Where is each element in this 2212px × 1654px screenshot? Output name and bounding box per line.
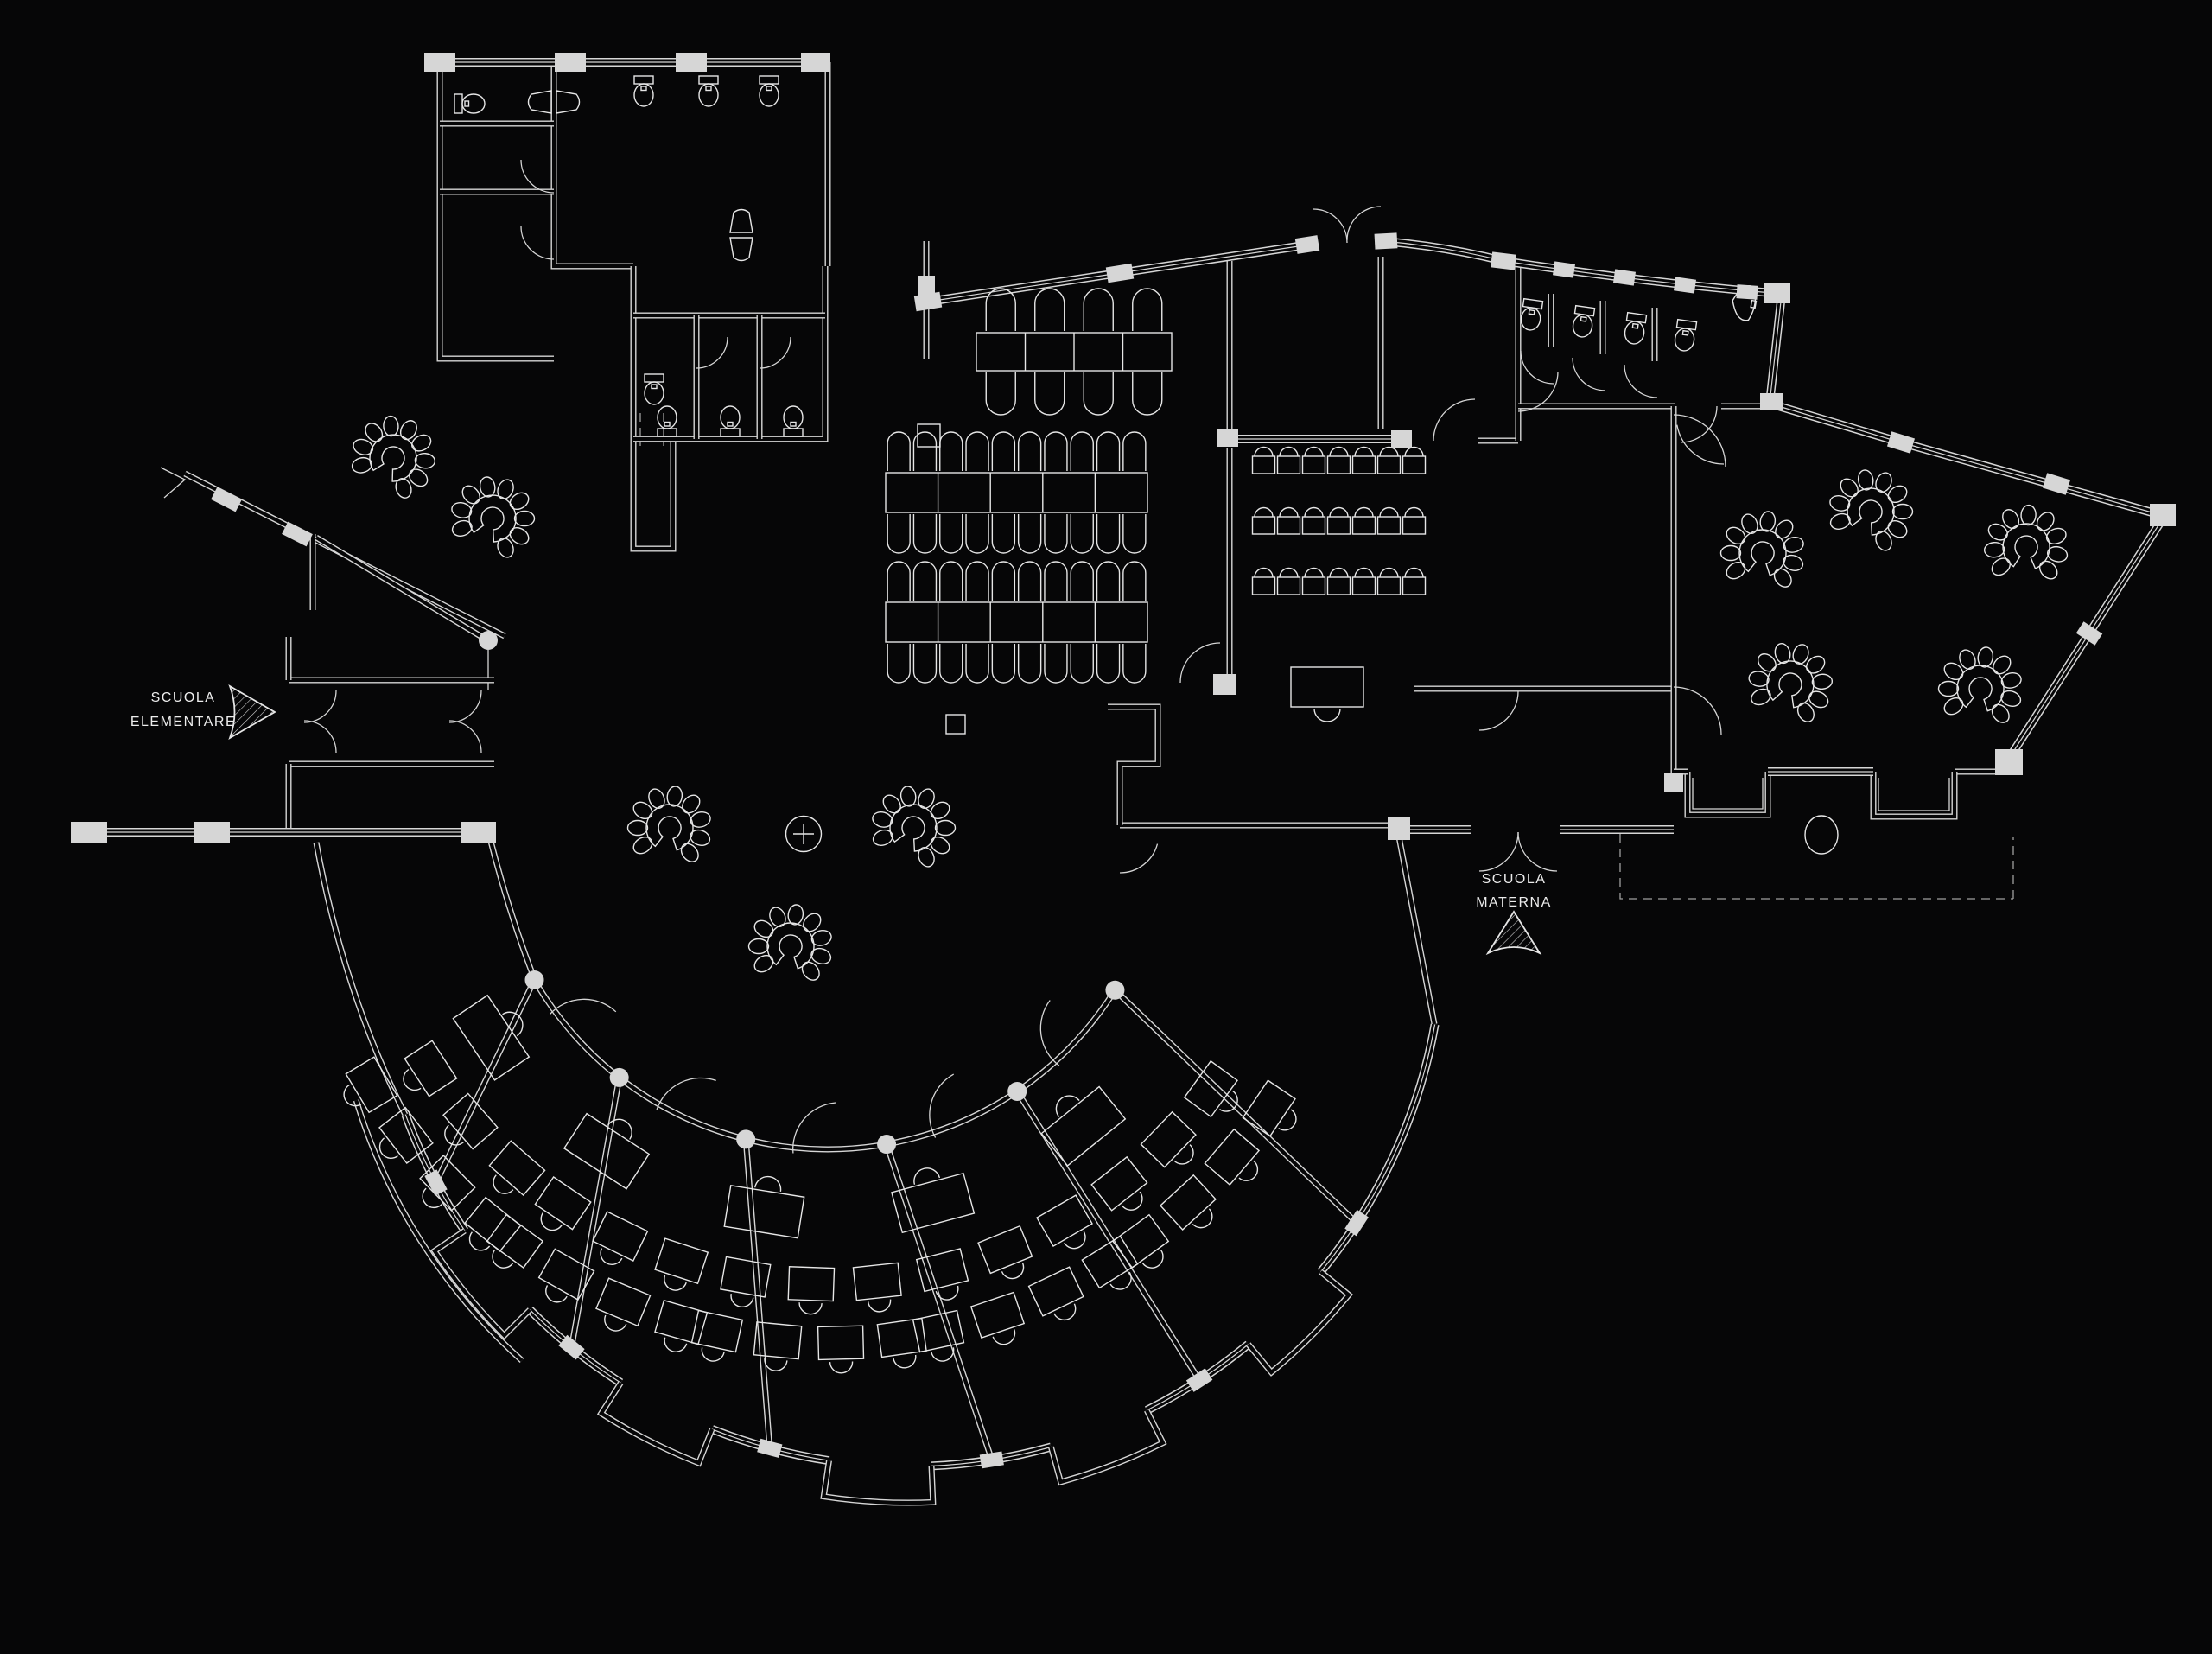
- pupil-chair-icon: [1999, 506, 2022, 531]
- pupil-chair-icon: [767, 905, 789, 929]
- column-icon: [1007, 1082, 1027, 1101]
- pupil-chair-icon: [362, 420, 385, 445]
- door-swing-icon: [1518, 832, 1557, 871]
- pupil-chair-icon: [1795, 700, 1817, 724]
- pier: [424, 53, 455, 72]
- pupil-chair-icon: [450, 518, 474, 538]
- horseshoe-table-icon: [1984, 505, 2069, 582]
- pier: [676, 53, 707, 72]
- pupil-chair-icon: [1045, 562, 1067, 601]
- pier: [1736, 284, 1758, 300]
- pupil-chair-icon: [406, 466, 431, 490]
- pupil-chair-icon: [1278, 448, 1300, 474]
- pupil-chair-icon: [1097, 644, 1120, 683]
- horseshoe-table-icon: [871, 786, 956, 869]
- door-swing-icon: [1479, 691, 1518, 730]
- door-swing-icon: [449, 690, 481, 722]
- student-desk-icon: [1243, 1080, 1306, 1143]
- wc-toilet-icon: [634, 76, 653, 106]
- door-swing-icon: [521, 160, 554, 193]
- dining-table-icon: [976, 289, 1172, 415]
- pier: [1217, 429, 1238, 447]
- horseshoe-table-icon: [351, 416, 435, 500]
- pupil-chair-icon: [1353, 508, 1376, 535]
- student-desk-icon: [971, 1293, 1029, 1352]
- pupil-chair-icon: [752, 952, 777, 976]
- pupil-chair-icon: [1253, 569, 1275, 595]
- bay-wall: [1051, 1410, 1163, 1482]
- pupil-chair-icon: [1253, 508, 1275, 535]
- pupil-chair-icon: [1378, 448, 1401, 474]
- pupil-chair-icon: [1828, 512, 1852, 531]
- pupil-chair-icon: [1812, 673, 1833, 690]
- pupil-chair-icon: [1071, 644, 1093, 683]
- teacher-desk-icon: [1291, 667, 1363, 722]
- pier: [1375, 232, 1398, 249]
- pupil-chair-icon: [1123, 514, 1146, 553]
- pupil-chair-icon: [1885, 482, 1910, 506]
- door-swing-icon: [1521, 351, 1554, 384]
- pupil-chair-icon: [1378, 569, 1401, 595]
- pupil-chair-icon: [1303, 508, 1325, 535]
- pupil-chair-icon: [1071, 514, 1093, 553]
- bay-wall: [1249, 1272, 1349, 1372]
- door-swing-icon: [1674, 687, 1721, 735]
- horseshoe-table-icon: [628, 786, 713, 865]
- pupil-chair-icon: [752, 917, 777, 940]
- pier: [194, 822, 230, 843]
- column-icon: [1105, 981, 1124, 1000]
- student-desk-icon: [818, 1326, 864, 1373]
- pupil-chair-icon: [1893, 505, 1913, 519]
- pupil-chair-icon: [1123, 562, 1146, 601]
- column-icon: [479, 631, 498, 650]
- door-swing-icon: [304, 690, 336, 722]
- wc-toilet-icon: [1674, 320, 1697, 353]
- pupil-chair-icon: [410, 432, 434, 455]
- column-icon: [736, 1129, 755, 1148]
- pier: [211, 487, 242, 512]
- pupil-chair-icon: [397, 417, 420, 442]
- pupil-chair-icon: [383, 416, 399, 436]
- pupil-chair-icon: [1942, 659, 1967, 683]
- pupil-chair-icon: [1303, 448, 1325, 474]
- student-desk-icon: [978, 1226, 1037, 1287]
- pupil-chair-icon: [940, 432, 963, 471]
- pupil-chair-icon: [966, 514, 988, 553]
- pupil-chair-icon: [1739, 512, 1761, 536]
- window-wall: [1321, 1025, 1435, 1272]
- pupil-chair-icon: [1084, 372, 1113, 415]
- pupil-chair-icon: [928, 798, 953, 822]
- label-materna-line1: SCUOLA: [1482, 872, 1547, 887]
- student-desk-icon: [651, 1238, 708, 1296]
- wc-toilet-icon: [721, 406, 740, 436]
- pupil-chair-icon: [1133, 289, 1162, 331]
- column-icon: [525, 970, 544, 989]
- pier: [1106, 264, 1134, 283]
- door-swing-icon: [304, 721, 336, 753]
- entrance-arrow-icon-right: [230, 686, 275, 738]
- pupil-chair-icon: [1328, 448, 1351, 474]
- pupil-chair-icon: [1986, 521, 2010, 544]
- teacher-desk-icon: [453, 987, 541, 1080]
- pupil-chair-icon: [1378, 508, 1401, 535]
- pupil-chair-icon: [1942, 695, 1967, 718]
- student-desk-icon: [1205, 1129, 1269, 1194]
- student-desk-icon: [718, 1256, 771, 1310]
- wall: [1108, 707, 1158, 825]
- wall: [1873, 772, 1955, 817]
- pier: [1491, 251, 1516, 270]
- pupil-chair-icon: [1303, 569, 1325, 595]
- pupil-chair-icon: [940, 514, 963, 553]
- pupil-chair-icon: [928, 834, 953, 857]
- door-swing-icon: [1479, 832, 1518, 871]
- pupil-chair-icon: [1097, 514, 1120, 553]
- door-swing-icon: [1624, 365, 1657, 398]
- student-desk-icon: [527, 1177, 590, 1241]
- thin-wall: [1693, 778, 1763, 809]
- pupil-chair-icon: [1885, 518, 1910, 541]
- door-swing-icon: [1573, 358, 1605, 391]
- wall: [633, 266, 825, 439]
- horseshoe-table-icon: [749, 904, 834, 983]
- pupil-chair-icon: [1873, 529, 1895, 553]
- pupil-chair-icon: [2034, 509, 2057, 534]
- pupil-chair-icon: [1353, 569, 1376, 595]
- student-desk-icon: [1029, 1267, 1090, 1328]
- student-desk-icon: [1113, 1215, 1177, 1279]
- floor-plan-canvas: SCUOLA ELEMENTARE SCUOLA MATERNA: [0, 0, 2212, 1654]
- pier: [801, 53, 830, 72]
- pupil-chair-icon: [992, 562, 1014, 601]
- pupil-chair-icon: [1353, 448, 1376, 474]
- pier: [1213, 674, 1236, 695]
- teacher-desk-icon: [1033, 1075, 1126, 1166]
- pier: [1887, 431, 1915, 453]
- pupil-chair-icon: [1721, 546, 1741, 561]
- pupil-chair-icon: [1097, 562, 1120, 601]
- pier: [1295, 235, 1319, 254]
- pupil-chair-icon: [1035, 372, 1065, 415]
- student-desk-icon: [788, 1267, 835, 1315]
- entrance-arrow-icon-up: [1488, 912, 1540, 953]
- pupil-chair-icon: [1939, 682, 1959, 697]
- wc-toilet-icon: [454, 94, 485, 113]
- pier: [1764, 283, 1790, 303]
- pupil-chair-icon: [1328, 569, 1351, 595]
- pier: [1613, 269, 1636, 285]
- wc-toilet-icon: [1520, 299, 1543, 332]
- pupil-chair-icon: [1084, 289, 1113, 331]
- pupil-chair-icon: [1019, 514, 1041, 553]
- pupil-chair-icon: [1253, 448, 1275, 474]
- pupil-chair-icon: [798, 958, 823, 983]
- dining-table-icon: [886, 562, 1147, 683]
- pupil-chair-icon: [1035, 289, 1065, 331]
- hall-inner-arc-wall: [535, 980, 1116, 1149]
- pupil-chair-icon: [887, 562, 910, 601]
- horseshoe-table-icon: [1748, 642, 1833, 725]
- door-swing-icon: [760, 337, 791, 368]
- door-swing-icon: [1313, 209, 1347, 243]
- pupil-chair-icon: [1097, 432, 1120, 471]
- pupil-chair-icon: [628, 821, 648, 836]
- pier: [1664, 773, 1683, 792]
- pupil-chair-icon: [495, 477, 517, 501]
- double-basin-sink-icon: [730, 210, 753, 261]
- door-swing-icon: [1120, 844, 1158, 873]
- door-swing-icon: [1040, 1001, 1058, 1066]
- label-materna-line2: MATERNA: [1476, 895, 1552, 910]
- wc-toilet-icon: [699, 76, 718, 106]
- pupil-chair-icon: [966, 432, 988, 471]
- pier: [555, 53, 586, 72]
- pupil-chair-icon: [1045, 432, 1067, 471]
- pupil-chair-icon: [1988, 701, 2012, 726]
- student-desk-icon: [652, 1301, 708, 1358]
- pupil-chair-icon: [507, 489, 532, 512]
- pier: [1995, 749, 2023, 775]
- wc-toilet-icon: [658, 406, 677, 436]
- pupil-chair-icon: [1724, 559, 1749, 582]
- canopy-dashed-line: [1620, 834, 2013, 899]
- pupil-chair-icon: [940, 644, 963, 683]
- pupil-chair-icon: [913, 644, 936, 683]
- pier: [1760, 393, 1783, 410]
- pupil-chair-icon: [507, 525, 532, 548]
- student-desk-icon: [877, 1319, 928, 1371]
- pupil-chair-icon: [913, 562, 936, 601]
- student-desk-icon: [1160, 1175, 1225, 1240]
- door-swing-icon: [550, 999, 616, 1014]
- pupil-chair-icon: [1071, 562, 1093, 601]
- pupil-chair-icon: [495, 536, 517, 560]
- pier: [980, 1451, 1004, 1468]
- pier: [757, 1439, 782, 1458]
- wc-toilet-icon: [645, 374, 664, 404]
- furniture-layer: [334, 76, 2069, 1373]
- survey-point-icon: [786, 817, 822, 852]
- pupil-chair-icon: [2020, 505, 2037, 525]
- pupil-chair-icon: [631, 834, 656, 857]
- pupil-chair-icon: [887, 432, 910, 471]
- pier: [282, 522, 313, 547]
- pier: [1553, 261, 1575, 277]
- pupil-chair-icon: [415, 453, 435, 469]
- student-desk-icon: [591, 1278, 651, 1339]
- bay-wall: [823, 1460, 933, 1503]
- pupil-chair-icon: [1328, 508, 1351, 535]
- pier: [1391, 430, 1412, 448]
- thin-wall: [1878, 778, 1949, 811]
- pier: [918, 276, 935, 298]
- student-desk-icon: [689, 1311, 742, 1366]
- pupil-chair-icon: [1123, 432, 1146, 471]
- pupil-chair-icon: [1873, 470, 1895, 494]
- pupil-chair-icon: [1749, 686, 1773, 708]
- door-swing-icon: [521, 226, 554, 259]
- pupil-chair-icon: [992, 644, 1014, 683]
- wc-toilet-icon: [1572, 306, 1595, 339]
- pupil-chair-icon: [1019, 644, 1041, 683]
- door-swing-icon: [449, 721, 481, 753]
- pupil-chair-icon: [677, 840, 702, 865]
- small-table-icon: [946, 715, 965, 734]
- wc-toilet-icon: [760, 76, 779, 106]
- pupil-chair-icon: [1989, 555, 2014, 579]
- door-swing-icon: [696, 337, 728, 368]
- student-desk-icon: [1141, 1112, 1205, 1177]
- pier: [2043, 473, 2070, 494]
- column-icon: [610, 1068, 629, 1087]
- pier: [2150, 504, 2176, 526]
- floor-plan-svg: SCUOLA ELEMENTARE SCUOLA MATERNA: [0, 0, 2212, 1654]
- pupil-chair-icon: [966, 644, 988, 683]
- pupil-chair-icon: [1045, 514, 1067, 553]
- student-desk-icon: [393, 1040, 457, 1104]
- student-desk-icon: [480, 1141, 545, 1206]
- horseshoe-table-icon: [1721, 511, 1806, 590]
- pupil-chair-icon: [992, 514, 1014, 553]
- pupil-chair-icon: [916, 845, 938, 869]
- pupil-chair-icon: [631, 798, 656, 822]
- thin-wall: [161, 468, 185, 498]
- column-icon: [877, 1135, 896, 1154]
- student-desk-icon: [1185, 1061, 1249, 1125]
- door-swing-icon: [1674, 415, 1726, 467]
- student-desk-icon: [917, 1249, 972, 1305]
- pupil-chair-icon: [1984, 542, 2005, 558]
- pupil-chair-icon: [1019, 562, 1041, 601]
- pupil-chair-icon: [1807, 688, 1831, 710]
- pupil-chair-icon: [1724, 524, 1749, 547]
- pupil-chair-icon: [916, 786, 938, 811]
- wall: [633, 266, 673, 549]
- student-desk-icon: [853, 1263, 902, 1314]
- horseshoe-table-icon: [1939, 646, 2024, 726]
- pupil-chair-icon: [1045, 644, 1067, 683]
- door-swing-icon: [1677, 425, 1724, 464]
- pupil-chair-icon: [1770, 565, 1795, 590]
- annotation-layer: SCUOLA ELEMENTARE SCUOLA MATERNA: [130, 686, 1552, 953]
- pupil-chair-icon: [1403, 508, 1426, 535]
- pupil-chair-icon: [1278, 508, 1300, 535]
- pier: [1674, 277, 1696, 293]
- pupil-chair-icon: [1133, 372, 1162, 415]
- pupil-chair-icon: [940, 562, 963, 601]
- pupil-chair-icon: [1803, 652, 1828, 677]
- pier: [1388, 817, 1410, 840]
- pupil-chair-icon: [986, 372, 1015, 415]
- tree-icon: [1805, 816, 1838, 854]
- pupil-chair-icon: [871, 828, 894, 848]
- wall: [316, 843, 405, 1115]
- pupil-chair-icon: [749, 939, 769, 954]
- pupil-chair-icon: [1403, 569, 1426, 595]
- pupil-chair-icon: [1403, 448, 1426, 474]
- pupil-chair-icon: [936, 821, 956, 836]
- label-elementare-line1: SCUOLA: [151, 690, 216, 705]
- pupil-chair-icon: [646, 786, 668, 811]
- pupil-chair-icon: [1071, 432, 1093, 471]
- horseshoe-table-icon: [450, 476, 535, 560]
- pupil-chair-icon: [1019, 432, 1041, 471]
- door-swing-icon: [1681, 406, 1717, 442]
- pupil-chair-icon: [1278, 569, 1300, 595]
- student-desk-icon: [1091, 1157, 1155, 1222]
- teacher-desk-icon: [724, 1171, 806, 1238]
- pupil-chair-icon: [913, 514, 936, 553]
- student-desk-icon: [334, 1057, 397, 1119]
- pupil-chair-icon: [1957, 647, 1979, 671]
- wall: [440, 62, 554, 359]
- wc-toilet-icon: [1624, 313, 1647, 346]
- pupil-chair-icon: [1123, 644, 1146, 683]
- pupil-chair-icon: [992, 432, 1014, 471]
- horseshoe-table-icon: [1828, 469, 1913, 553]
- terrace-wall: [356, 1100, 522, 1360]
- door-swing-icon: [1433, 399, 1475, 441]
- pupil-chair-icon: [515, 512, 535, 526]
- pupil-chair-icon: [887, 514, 910, 553]
- pier: [461, 822, 496, 843]
- wc-toilet-icon: [784, 406, 803, 436]
- pupil-chair-icon: [887, 644, 910, 683]
- pier: [71, 822, 107, 843]
- pupil-chair-icon: [966, 562, 988, 601]
- label-elementare-line2: ELEMENTARE: [130, 715, 236, 729]
- dining-table-icon: [886, 432, 1147, 553]
